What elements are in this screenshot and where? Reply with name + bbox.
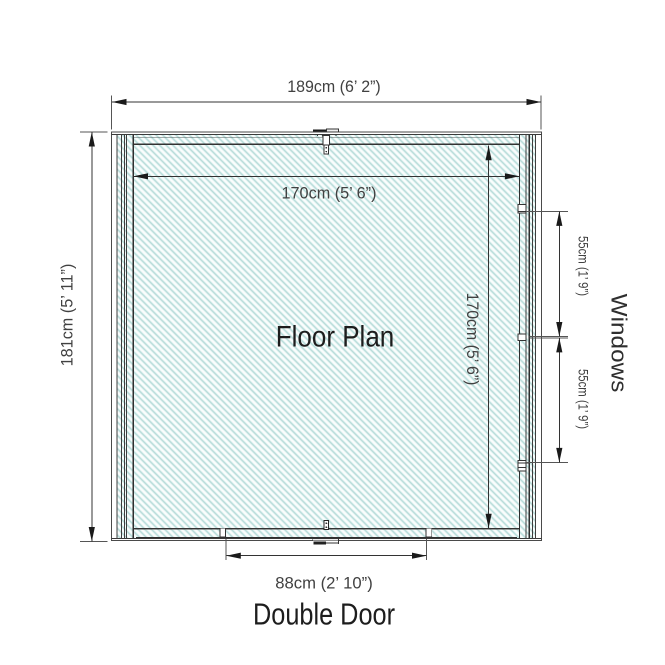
- svg-text:170cm (5’ 6”): 170cm (5’ 6”): [463, 293, 481, 386]
- svg-text:Windows: Windows: [607, 294, 632, 393]
- svg-text:170cm (5’ 6”): 170cm (5’ 6”): [282, 185, 377, 203]
- svg-text:189cm (6’ 2”): 189cm (6’ 2”): [287, 78, 381, 96]
- svg-text:55cm (1’ 9”): 55cm (1’ 9”): [576, 236, 592, 296]
- svg-text:Double Door: Double Door: [253, 597, 395, 632]
- svg-text:181cm (5’ 11”): 181cm (5’ 11”): [59, 264, 77, 367]
- svg-text:88cm (2’ 10”): 88cm (2’ 10”): [275, 575, 373, 593]
- svg-text:55cm (1’ 9”): 55cm (1’ 9”): [576, 369, 592, 429]
- svg-text:Floor Plan: Floor Plan: [276, 321, 395, 354]
